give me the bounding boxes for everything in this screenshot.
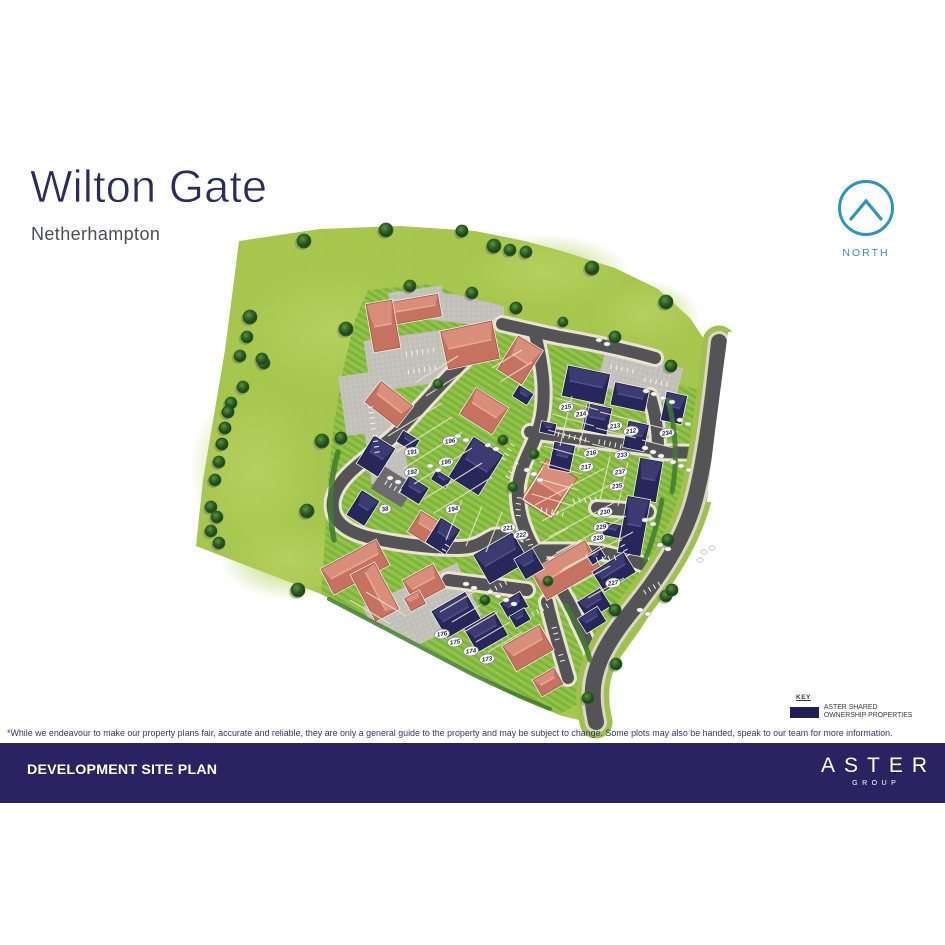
svg-text:192: 192 (406, 468, 418, 476)
svg-text:195: 195 (440, 458, 452, 466)
svg-text:173: 173 (481, 655, 493, 663)
svg-text:194: 194 (447, 505, 459, 513)
svg-text:191: 191 (406, 448, 418, 456)
svg-text:175: 175 (449, 638, 461, 646)
svg-text:174: 174 (465, 647, 477, 655)
svg-text:176: 176 (436, 630, 448, 638)
svg-text:196: 196 (444, 437, 456, 445)
